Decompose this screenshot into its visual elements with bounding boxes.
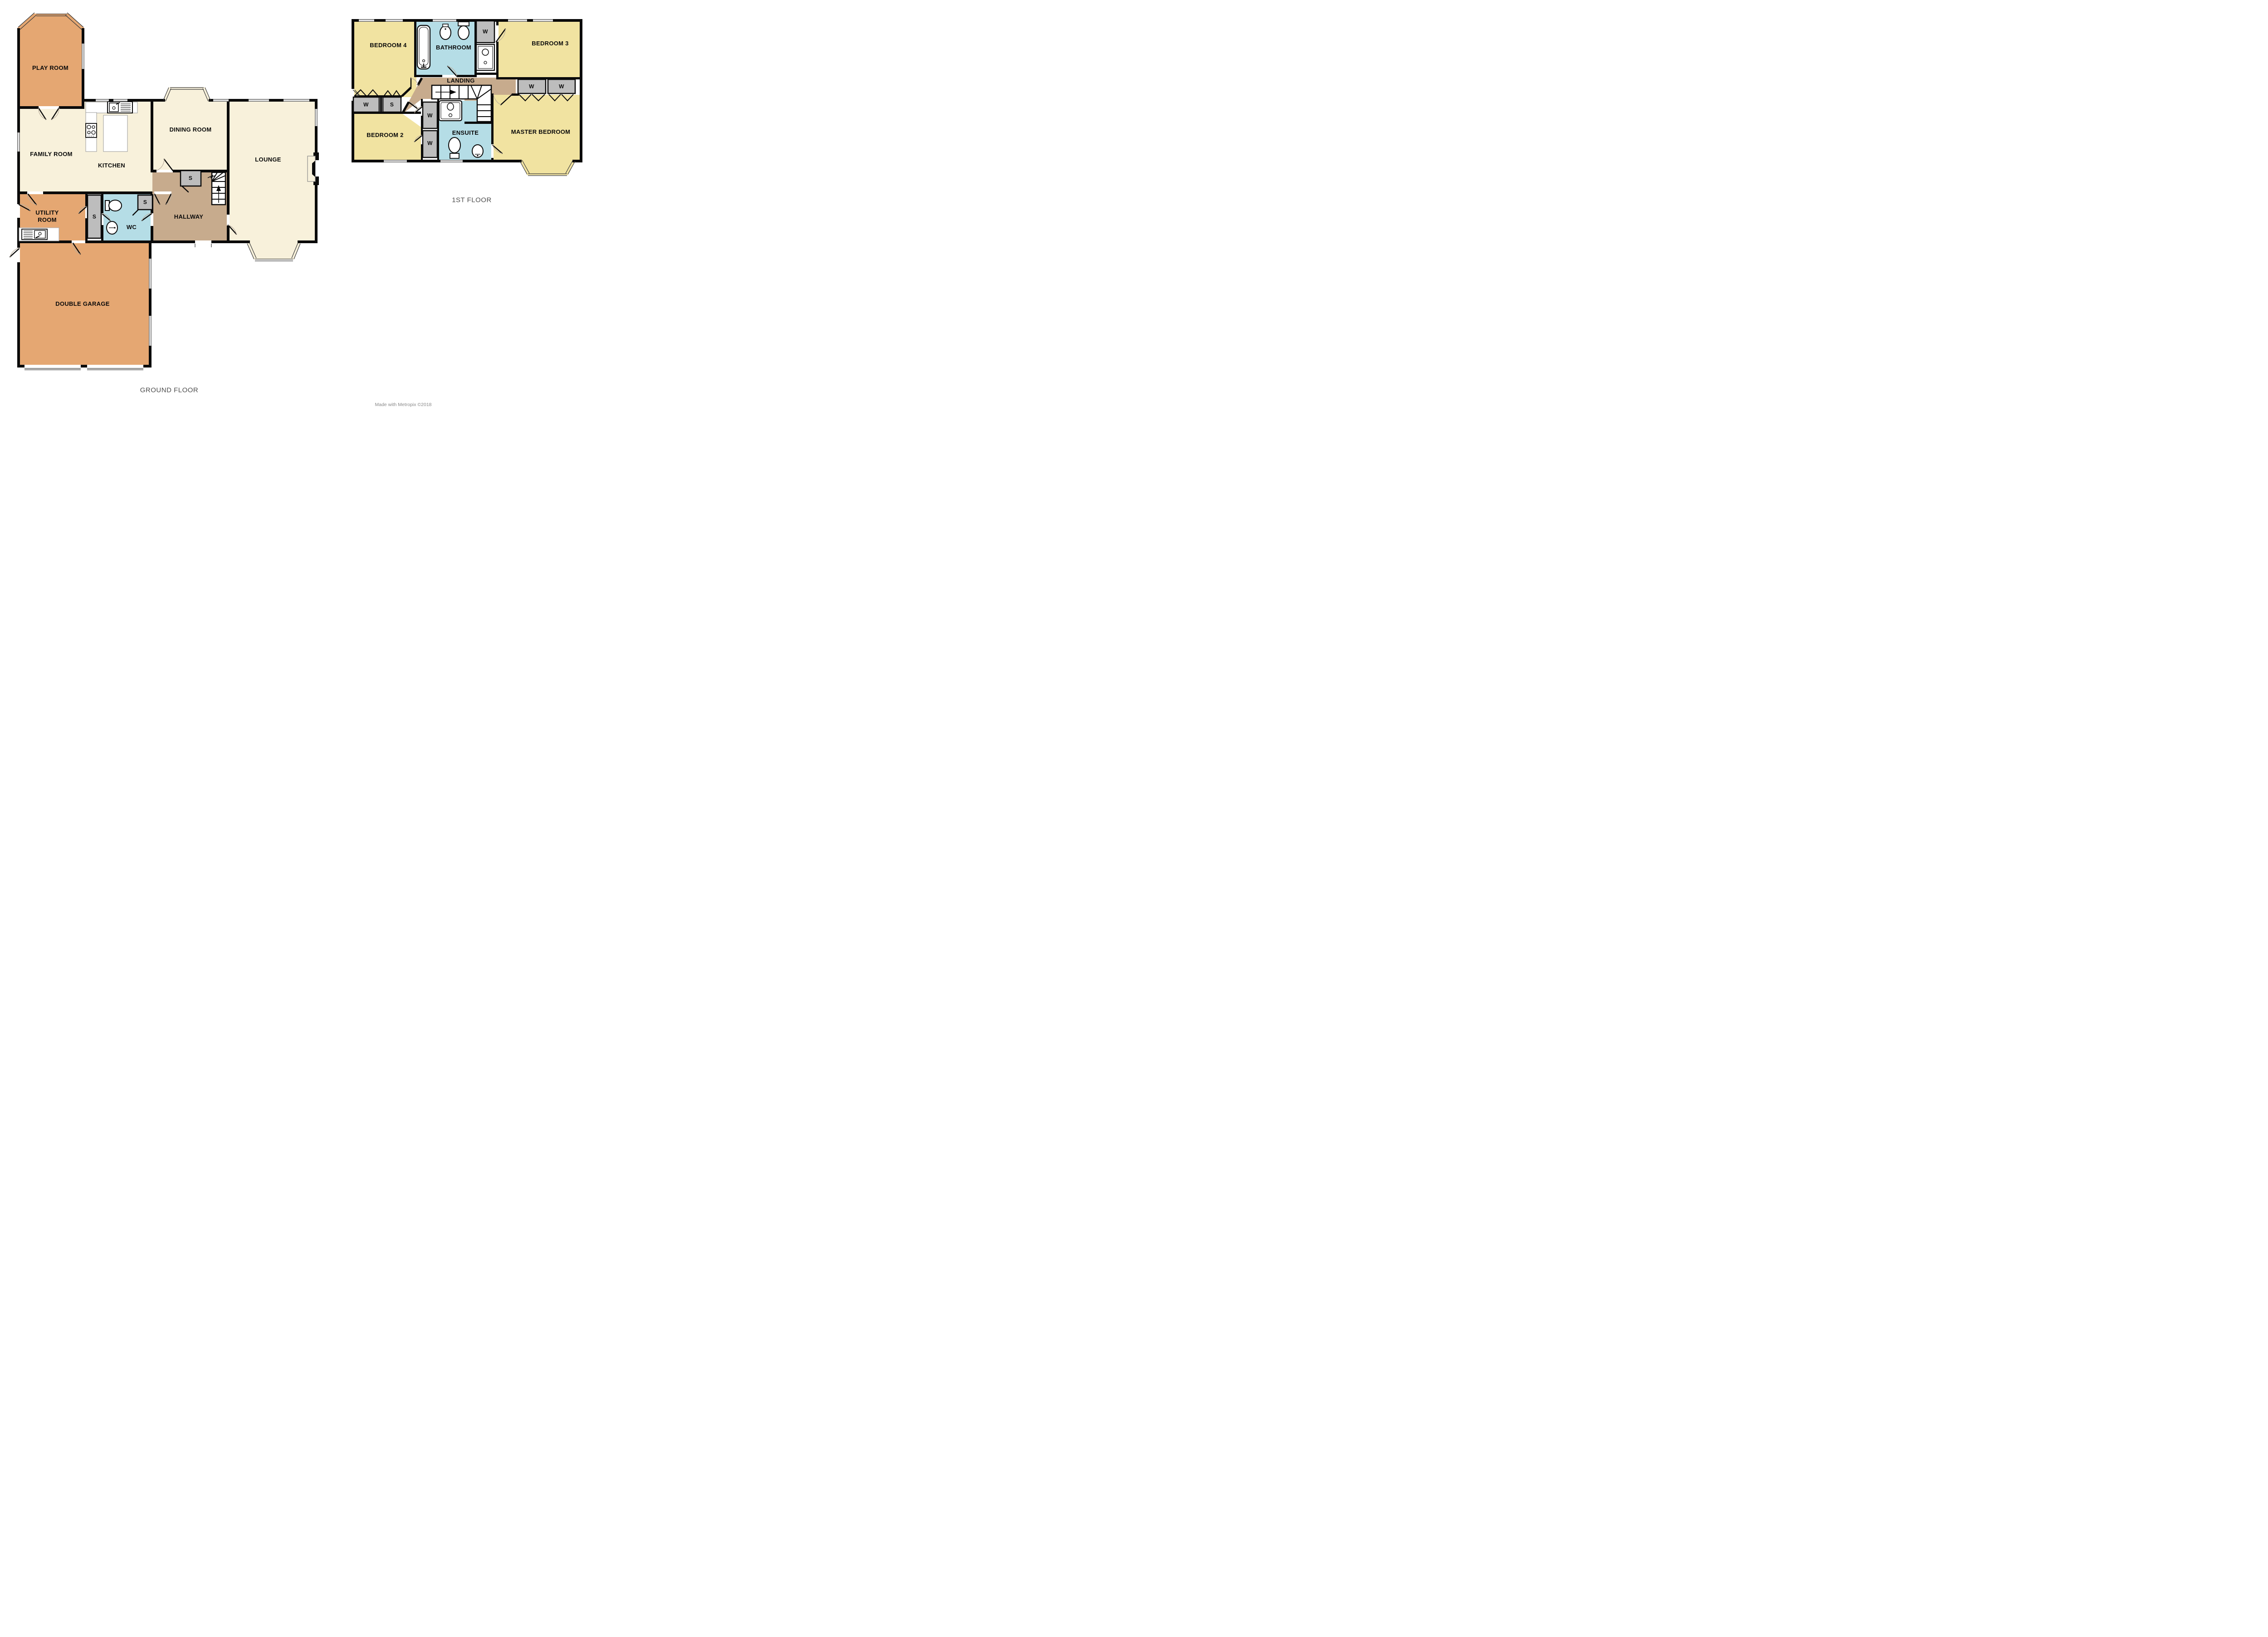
- lounge-floor: [230, 101, 318, 260]
- room-label-hallway: HALLWAY: [174, 213, 203, 221]
- room-label-bedroom-4: BEDROOM 4: [370, 42, 406, 49]
- metropix-credit: Made with Metropix ©2018: [375, 402, 431, 407]
- ground-floor-title: GROUND FLOOR: [140, 387, 199, 394]
- hob-icon: [86, 123, 97, 137]
- room-label-wc: WC: [127, 224, 137, 231]
- ensuite-sink-icon: [472, 145, 483, 157]
- cupboard-label-s-landing: S: [390, 102, 394, 108]
- ensuite-toilet-icon: [449, 137, 460, 158]
- room-label-lounge: LOUNGE: [255, 156, 281, 163]
- cupboard-label-s-utility: S: [93, 214, 96, 221]
- floorplan-page: PLAY ROOM FAMILY ROOM KITCHEN DINING ROO…: [0, 0, 597, 409]
- shower-icon: [476, 44, 494, 70]
- utility-sink-icon: [19, 228, 59, 241]
- room-label-utility-room: UTILITY ROOM: [26, 209, 68, 224]
- cupboard-label-w-master-2: W: [559, 83, 564, 90]
- bedroom4-floor: [352, 19, 416, 97]
- cupboard-label-w-bedroom2-1: W: [427, 113, 433, 119]
- family-kitchen-floor: [17, 101, 152, 194]
- wc-sink-icon: [107, 221, 117, 234]
- room-label-play-room: PLAY ROOM: [32, 64, 68, 72]
- room-label-bedroom-2: BEDROOM 2: [367, 132, 403, 139]
- bedroom3-floor: [496, 19, 582, 79]
- room-label-double-garage: DOUBLE GARAGE: [55, 300, 109, 308]
- front-door: [195, 244, 211, 247]
- ensuite-shower-icon: [439, 101, 462, 121]
- room-label-kitchen: KITCHEN: [98, 162, 125, 169]
- room-label-landing: LANDING: [447, 77, 474, 84]
- kitchen-sink-icon: [108, 102, 132, 113]
- room-label-family-room: FAMILY ROOM: [30, 151, 73, 158]
- room-label-master-bedroom: MASTER BEDROOM: [511, 128, 571, 136]
- cupboard-label-s-wc: S: [143, 199, 147, 206]
- wc-toilet-icon: [105, 200, 122, 211]
- bathroom-toilet-icon: [458, 22, 469, 39]
- room-label-dining-room: DINING ROOM: [170, 126, 212, 133]
- room-label-ensuite: ENSUITE: [452, 129, 479, 137]
- cupboard-label-w-landing: W: [363, 102, 369, 108]
- cupboard-label-w-bedroom2-2: W: [427, 140, 433, 147]
- floorplan-drawing: [0, 0, 597, 409]
- room-label-bathroom: BATHROOM: [436, 44, 471, 51]
- cupboard-label-w-master-1: W: [529, 83, 534, 90]
- play-room-floor: [17, 14, 84, 109]
- room-label-bedroom-3: BEDROOM 3: [532, 40, 568, 47]
- cupboard-label-w-bathroom: W: [483, 29, 488, 35]
- first-floor-title: 1ST FLOOR: [452, 196, 492, 204]
- cupboard-label-s-hall: S: [189, 175, 192, 182]
- bath-icon: [417, 25, 430, 69]
